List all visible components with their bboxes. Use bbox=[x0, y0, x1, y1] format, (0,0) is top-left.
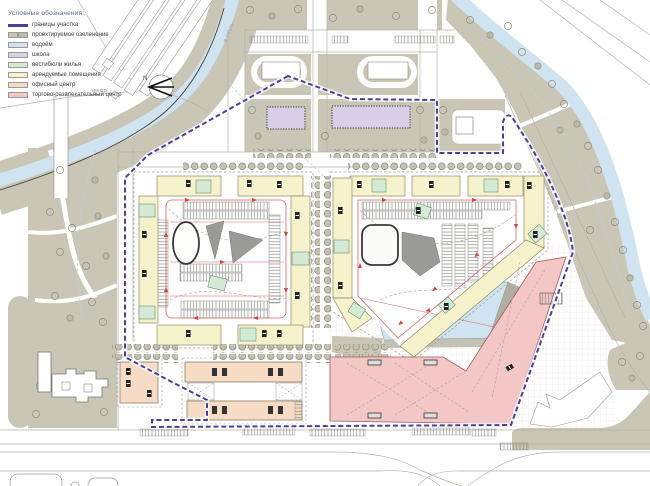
legend-title: Условные обозначения: bbox=[8, 10, 158, 17]
bridge bbox=[54, 92, 68, 198]
office-ramp bbox=[295, 402, 302, 420]
legend-swatch-rental bbox=[8, 72, 28, 78]
legend: Условные обозначения: границы участка пр… bbox=[8, 10, 158, 100]
school-buildings bbox=[267, 106, 410, 129]
legend-item-lobby: вестибюли жилья bbox=[8, 60, 158, 70]
school-building-right bbox=[332, 106, 410, 128]
legend-item-school: школа bbox=[8, 50, 158, 60]
site-plan-page: Условные обозначения: границы участка пр… bbox=[0, 0, 650, 486]
legend-item-water: водоём bbox=[8, 40, 158, 50]
legend-item-greenery: проектируемое озеленение bbox=[8, 30, 158, 40]
legend-swatch-greenery-1 bbox=[8, 32, 18, 38]
legend-swatch-school bbox=[8, 52, 28, 58]
legend-item-office: офисный центр bbox=[8, 80, 158, 90]
legend-item-boundary: границы участка bbox=[8, 20, 158, 30]
office-bar-south bbox=[187, 401, 302, 420]
legend-swatch-boundary bbox=[8, 24, 28, 27]
legend-swatch-lobby bbox=[8, 62, 28, 68]
legend-swatch-office bbox=[8, 82, 28, 88]
courtyard-oval-a bbox=[173, 222, 199, 264]
legend-swatch-greenery-2 bbox=[18, 32, 28, 38]
legend-swatch-retail bbox=[8, 92, 28, 98]
courtyard-loop-b bbox=[362, 225, 398, 265]
legend-swatch-water bbox=[8, 42, 28, 48]
school-building-left bbox=[267, 107, 305, 129]
legend-item-rental: арендуемые помещения bbox=[8, 70, 158, 80]
office-annex bbox=[120, 362, 158, 403]
street-median-left bbox=[8, 296, 32, 428]
residential-block-a bbox=[134, 172, 313, 348]
legend-item-retail: торгово-развлекательный центр bbox=[8, 90, 158, 100]
office-bar-north bbox=[185, 362, 302, 382]
